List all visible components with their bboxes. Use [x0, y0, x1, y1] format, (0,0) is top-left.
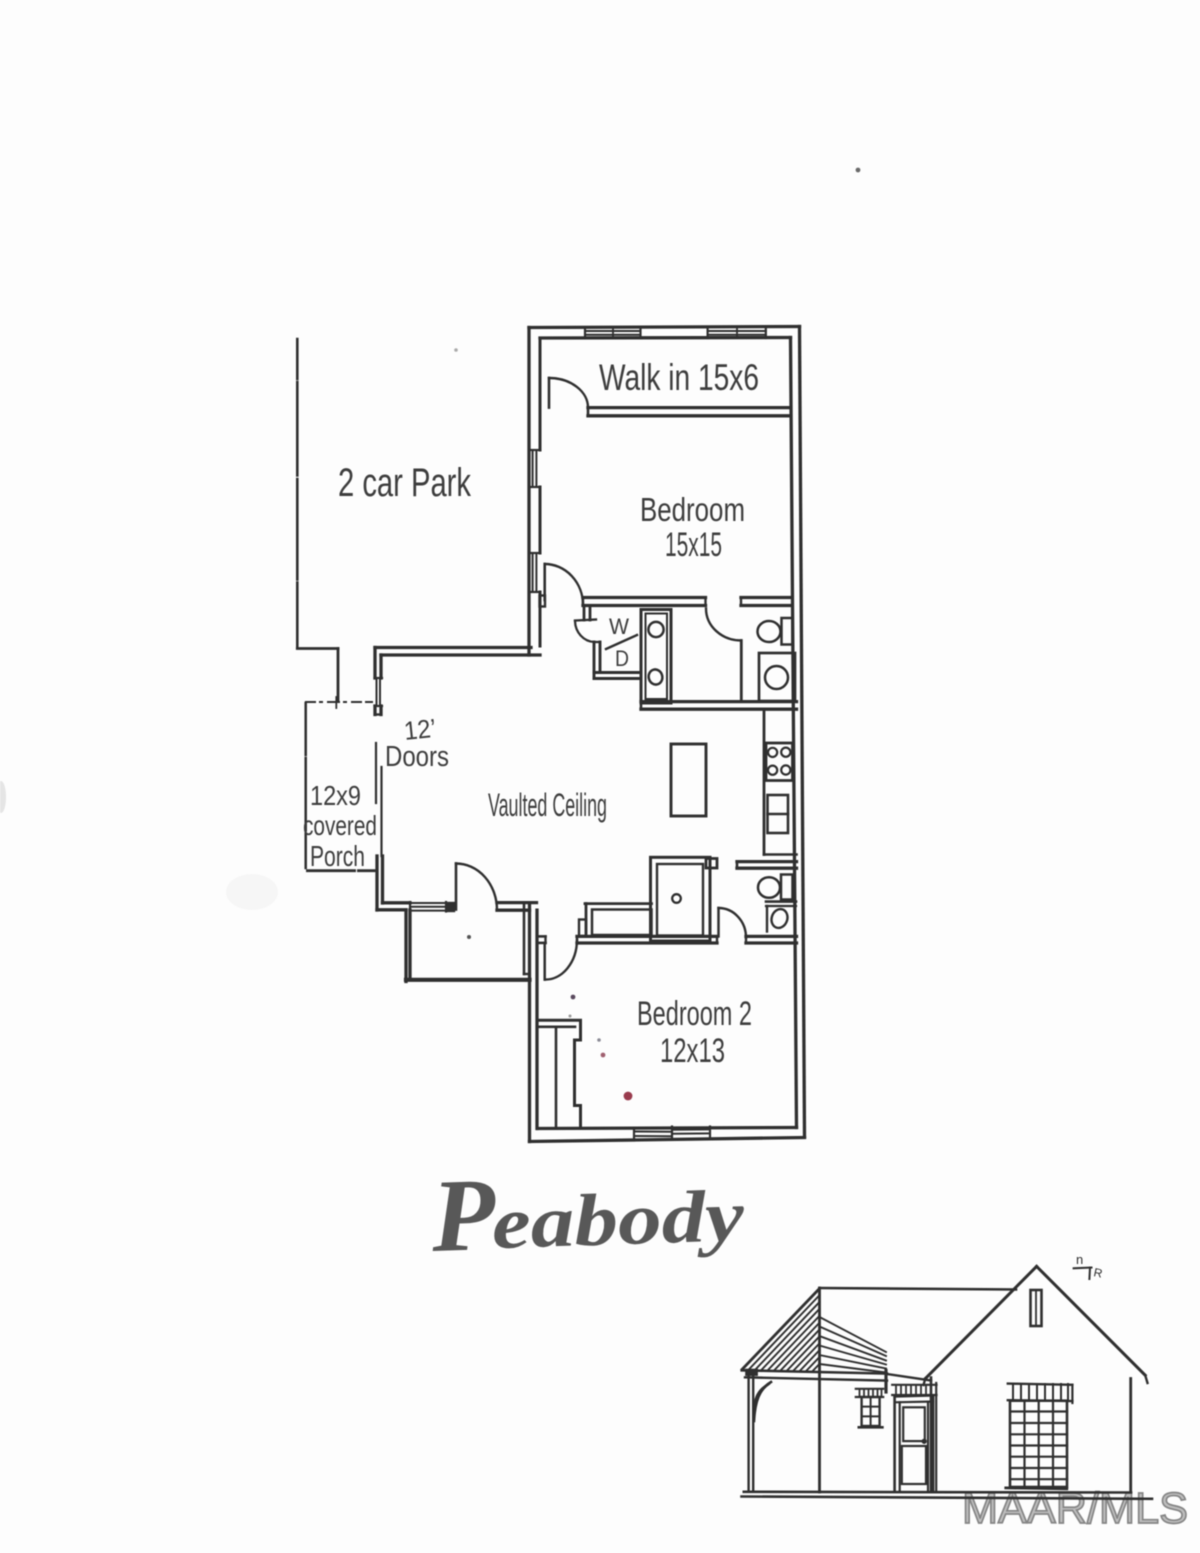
svg-text:covered: covered — [303, 810, 377, 841]
svg-text:eabody: eabody — [491, 1175, 747, 1265]
svg-text:12x13: 12x13 — [660, 1032, 725, 1070]
svg-text:15x15: 15x15 — [665, 526, 722, 564]
svg-text:Porch: Porch — [310, 841, 365, 873]
svg-text:Doors: Doors — [385, 741, 449, 773]
svg-text:R: R — [1092, 1265, 1104, 1281]
svg-text:D: D — [615, 646, 629, 671]
svg-text:P: P — [429, 1157, 499, 1274]
svg-text:Bedroom: Bedroom — [640, 491, 745, 528]
svg-text:2 car Park: 2 car Park — [338, 461, 472, 505]
svg-text:12x9: 12x9 — [310, 780, 361, 811]
svg-text:Vaulted Ceiling: Vaulted Ceiling — [488, 787, 607, 823]
svg-text:Bedroom 2: Bedroom 2 — [637, 995, 752, 1033]
svg-text:Walk in 15x6: Walk in 15x6 — [599, 357, 759, 398]
svg-text:n: n — [1076, 1252, 1083, 1267]
svg-text:W: W — [609, 614, 629, 639]
